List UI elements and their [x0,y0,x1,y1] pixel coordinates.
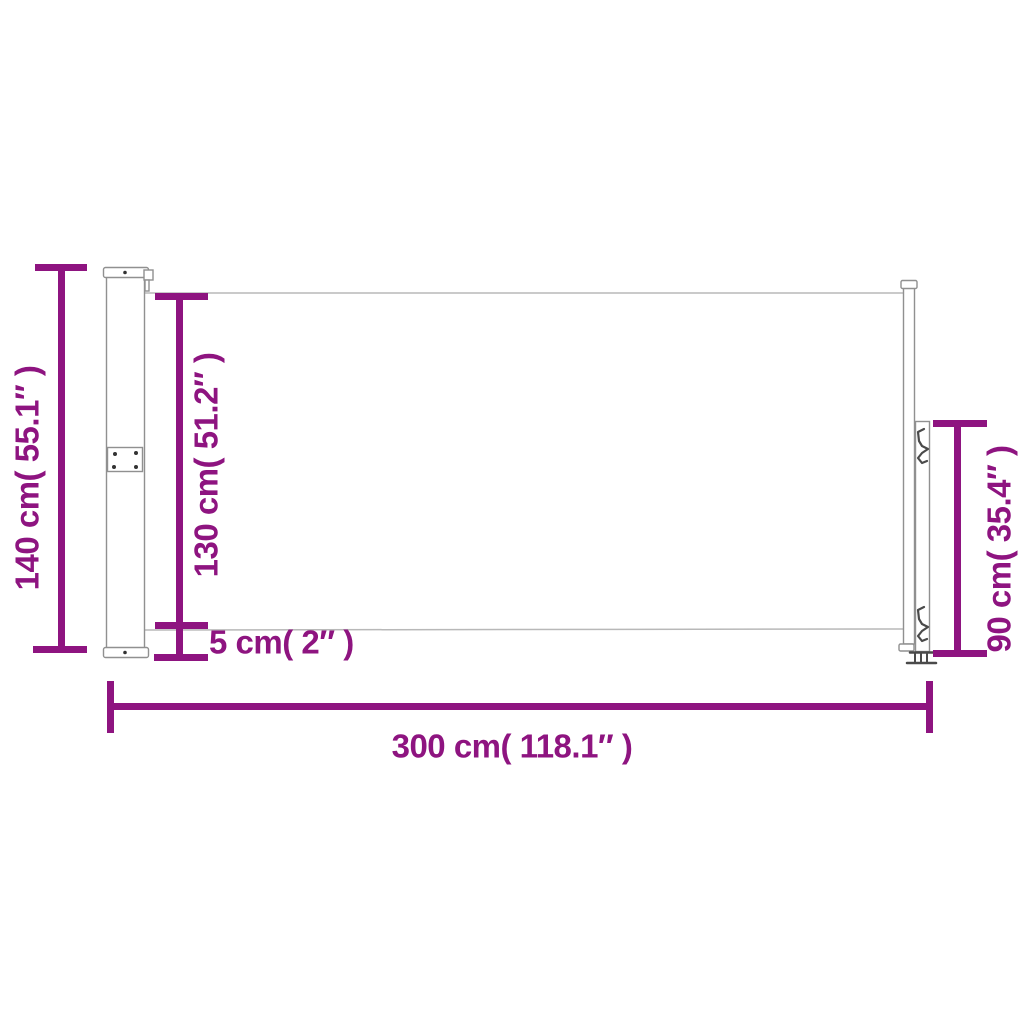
dim-label-total-length: 300 cm( 118.1″ ) [392,730,633,763]
dim-line-total-height [58,266,65,653]
diagram-canvas: 140 cm( 55.1″ ) 130 cm( 51.2″ ) 5 cm( 2″… [0,0,1024,1024]
dim-line-handle-post [954,422,961,656]
dim-label-total-height: 140 cm( 55.1″ ) [11,366,44,591]
mount-screw [112,465,116,469]
mount-screw [113,452,117,456]
bottom-cap-rivet [123,651,127,655]
dim-cap-fabric-height-bottom [155,622,208,629]
dim-cap-total-length-left [107,681,114,733]
dim-label-bottom-gap: 5 cm( 2″ ) [209,626,354,659]
dim-label-handle-post: 90 cm( 35.4″ ) [983,446,1016,653]
dim-line-fabric-height [176,294,183,661]
dim-cap-fabric-height-top [155,293,208,300]
dim-cap-total-height-top [35,264,87,271]
dim-line-total-length [110,703,930,710]
pull-pole-top-cap [901,281,917,289]
dim-label-fabric-height: 130 cm( 51.2″ ) [190,353,223,578]
dim-cap-handle-post-bottom [933,650,987,657]
mount-screw [134,465,138,469]
dim-cap-bottom-gap [154,654,208,661]
top-pull-bracket [144,270,153,280]
dim-cap-total-length-right [926,681,933,733]
handle-rail-strip [916,422,930,652]
dim-cap-handle-post-top [933,420,987,427]
pull-pole-bottom-cap [899,644,914,651]
awning-drawing [0,0,1024,1024]
top-cap-rivet [123,271,127,275]
pull-pole-body [904,287,915,644]
mount-screw [134,451,138,455]
dim-cap-total-height-bottom [33,646,87,653]
top-pull-bracket-tab [145,280,149,291]
